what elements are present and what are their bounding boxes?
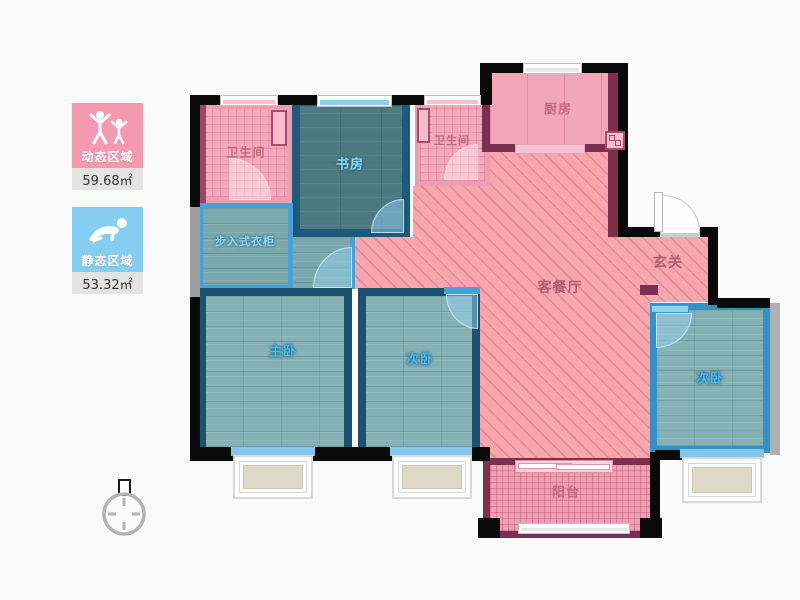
entry-door-leaf [654, 192, 663, 232]
bay-window-bedroom-2 [392, 455, 472, 499]
legend-dynamic-area-card[interactable]: 动态区域 [72, 103, 143, 168]
wall-bathroom1-left-inner [199, 100, 206, 204]
stove-icon [605, 131, 625, 150]
label-bedroom-2: 次卧 [406, 349, 434, 368]
legend-static-area-card[interactable]: 静态区域 [72, 207, 143, 272]
north-compass-icon [94, 477, 156, 539]
toilet-icon [417, 108, 430, 143]
wall-bottom-seg-1 [190, 447, 234, 461]
people-arms-up-icon [86, 110, 130, 146]
wall-bedroom3-top [717, 298, 770, 308]
washbasin-icon [271, 110, 287, 146]
opening-kitchen-door [515, 144, 585, 154]
legend-dynamic-label: 动态区域 [81, 148, 133, 165]
legend-dynamic-value: 59.68㎡ [72, 168, 143, 190]
wall-balcony-corner-right [640, 518, 662, 538]
door-leaf-bedroom-3 [651, 305, 689, 313]
wall-kitchen-right-outer [618, 63, 628, 237]
wall-top-seg-3 [391, 95, 425, 105]
wall-foyer-right [708, 227, 718, 305]
wall-outer-left-bottom [190, 297, 200, 455]
label-foyer: 玄关 [653, 252, 683, 272]
window-kitchen [523, 63, 582, 74]
window-bathroom-1 [220, 95, 278, 106]
wall-kitchen-top-left [482, 63, 524, 73]
legend-static-label: 静态区域 [81, 252, 133, 269]
wall-balcony-corner-left [478, 518, 500, 538]
wall-bottom-seg-2 [312, 447, 392, 461]
window-balcony-slider [515, 460, 613, 473]
label-walk-in-closet: 步入式衣柜 [215, 233, 275, 249]
wall-bedroom3-right-shadow [770, 303, 780, 455]
label-bathroom-1: 卫生间 [226, 144, 265, 161]
label-living-dining: 客餐厅 [538, 277, 583, 297]
wall-foyer-bottom-corner [640, 285, 658, 295]
label-bathroom-2: 卫生间 [434, 132, 470, 148]
bay-window-master [233, 455, 313, 499]
legend-static-value: 53.32㎡ [72, 272, 143, 294]
label-balcony: 阳台 [552, 482, 580, 501]
wall-top-seg-2 [277, 95, 318, 105]
entry-door-arc [663, 195, 700, 232]
person-crawling-icon [85, 214, 131, 246]
wall-outer-left-top [190, 95, 200, 207]
window-bathroom-2 [424, 95, 481, 106]
label-master-bedroom: 主卧 [269, 341, 297, 360]
room-master-bedroom [198, 288, 352, 460]
wall-kitchen-right-inner [608, 73, 618, 237]
window-balcony-bottom [518, 523, 630, 534]
label-kitchen: 厨房 [544, 99, 572, 118]
window-study [317, 95, 392, 107]
door-leaf-bedroom-2 [444, 287, 480, 294]
wall-top-seg-1 [190, 95, 222, 105]
bay-window-bedroom-3 [682, 457, 762, 503]
wall-outer-left-mid [190, 207, 200, 297]
label-bedroom-3: 次卧 [696, 368, 724, 387]
label-study: 书房 [336, 154, 364, 173]
